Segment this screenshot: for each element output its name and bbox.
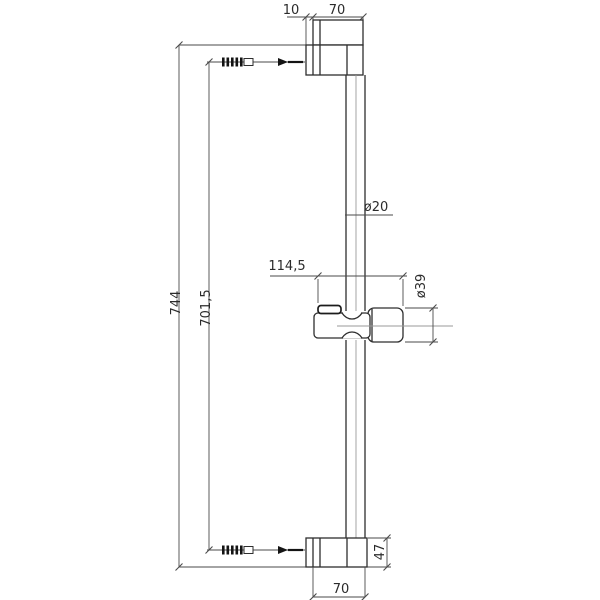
dim-label-hole-spacing: 701,5 bbox=[199, 289, 214, 326]
dim-label-top-offset: 10 bbox=[283, 3, 300, 18]
dimension-rail-diameter: ø20 bbox=[345, 200, 393, 215]
holder-knob bbox=[368, 308, 403, 342]
dimension-holder-diameter: ø39 bbox=[405, 274, 438, 346]
shower-rail-drawing: 10 70 744 701,5 bbox=[0, 0, 600, 600]
dim-label-top-bracket-width: 70 bbox=[329, 3, 346, 18]
dim-label-holder-depth: 114,5 bbox=[268, 259, 305, 274]
screw-direction-arrow-icon bbox=[278, 58, 288, 66]
top-wall-bracket bbox=[306, 20, 363, 75]
dim-label-bracket-height: 47 bbox=[373, 544, 388, 561]
bottom-wall-bracket bbox=[306, 538, 367, 567]
top-mounting-screw bbox=[207, 58, 305, 67]
rail bbox=[346, 75, 365, 538]
bottom-mounting-screw bbox=[207, 546, 305, 555]
dim-label-overall-length: 744 bbox=[169, 291, 184, 316]
dimension-bottom-width: 70 bbox=[310, 567, 369, 600]
dim-label-bottom-bracket-width: 70 bbox=[333, 582, 350, 597]
dim-label-rail-diameter: ø20 bbox=[364, 200, 389, 215]
dim-label-holder-diameter: ø39 bbox=[414, 274, 429, 299]
dimension-holder-depth: 114,5 bbox=[268, 259, 407, 306]
holder-release-button bbox=[318, 306, 341, 314]
holder-body bbox=[314, 313, 370, 338]
screw-direction-arrow-icon bbox=[278, 546, 288, 554]
dimension-bracket-height: 47 bbox=[368, 535, 391, 571]
dimension-hole-spacing: 701,5 bbox=[199, 59, 214, 554]
technical-drawing-canvas: 10 70 744 701,5 bbox=[0, 0, 600, 600]
slider-holder bbox=[314, 306, 453, 343]
